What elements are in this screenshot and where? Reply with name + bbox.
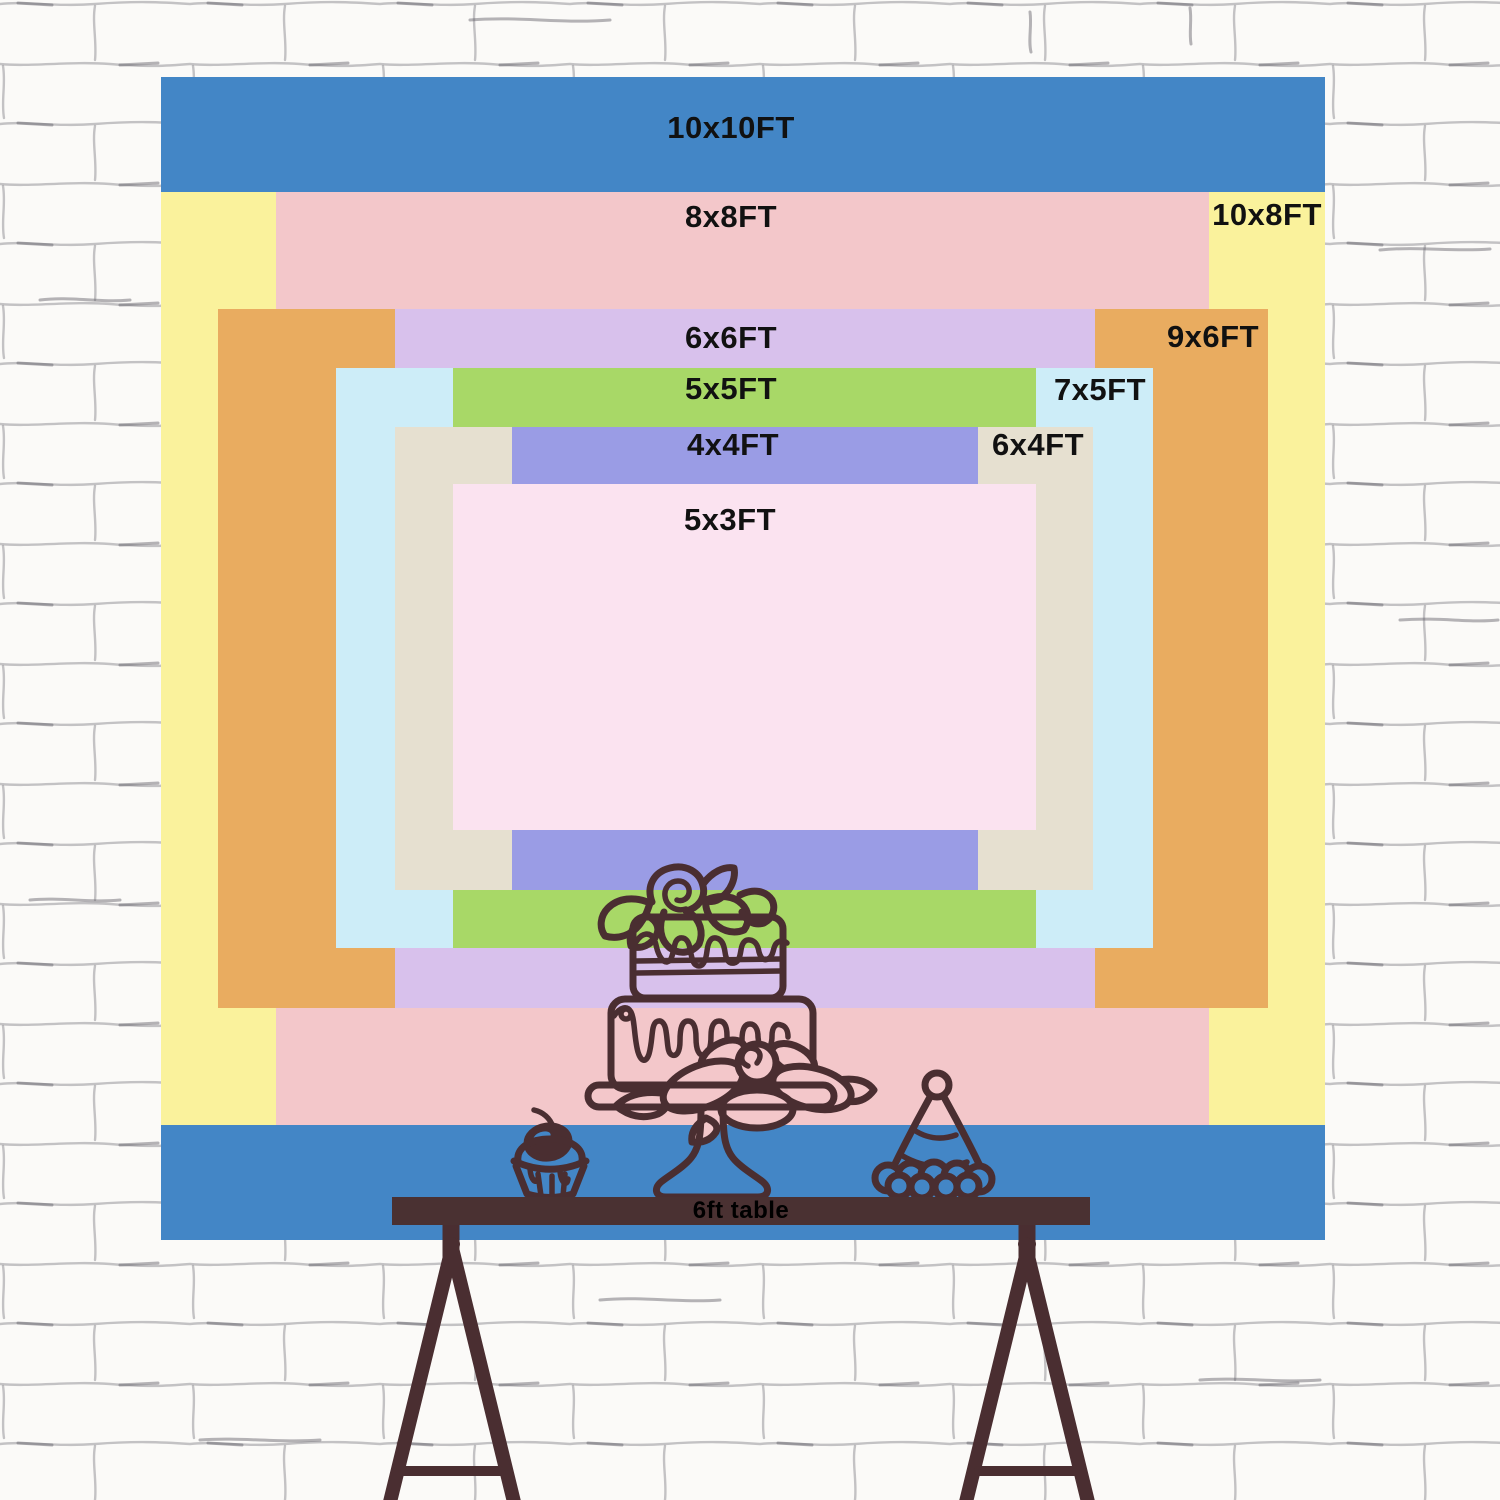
table-top-bar: 6ft table: [392, 1197, 1090, 1225]
cupcake-illustration: [514, 1110, 586, 1198]
trestle-legs-left: [390, 1220, 514, 1500]
illustrations-overlay: [0, 0, 1500, 1500]
tiered-cake-illustration: [588, 867, 874, 1197]
table-size-label: 6ft table: [693, 1197, 790, 1225]
trestle-legs-right: [966, 1220, 1088, 1500]
hat-scalloped-brim: [875, 1162, 992, 1198]
backdrop-size-chart: 10x10FT 8x8FT 10x8FT 6x6FT 9x6FT 5x5FT 7…: [0, 0, 1500, 1500]
party-hat-illustration: [875, 1073, 992, 1198]
